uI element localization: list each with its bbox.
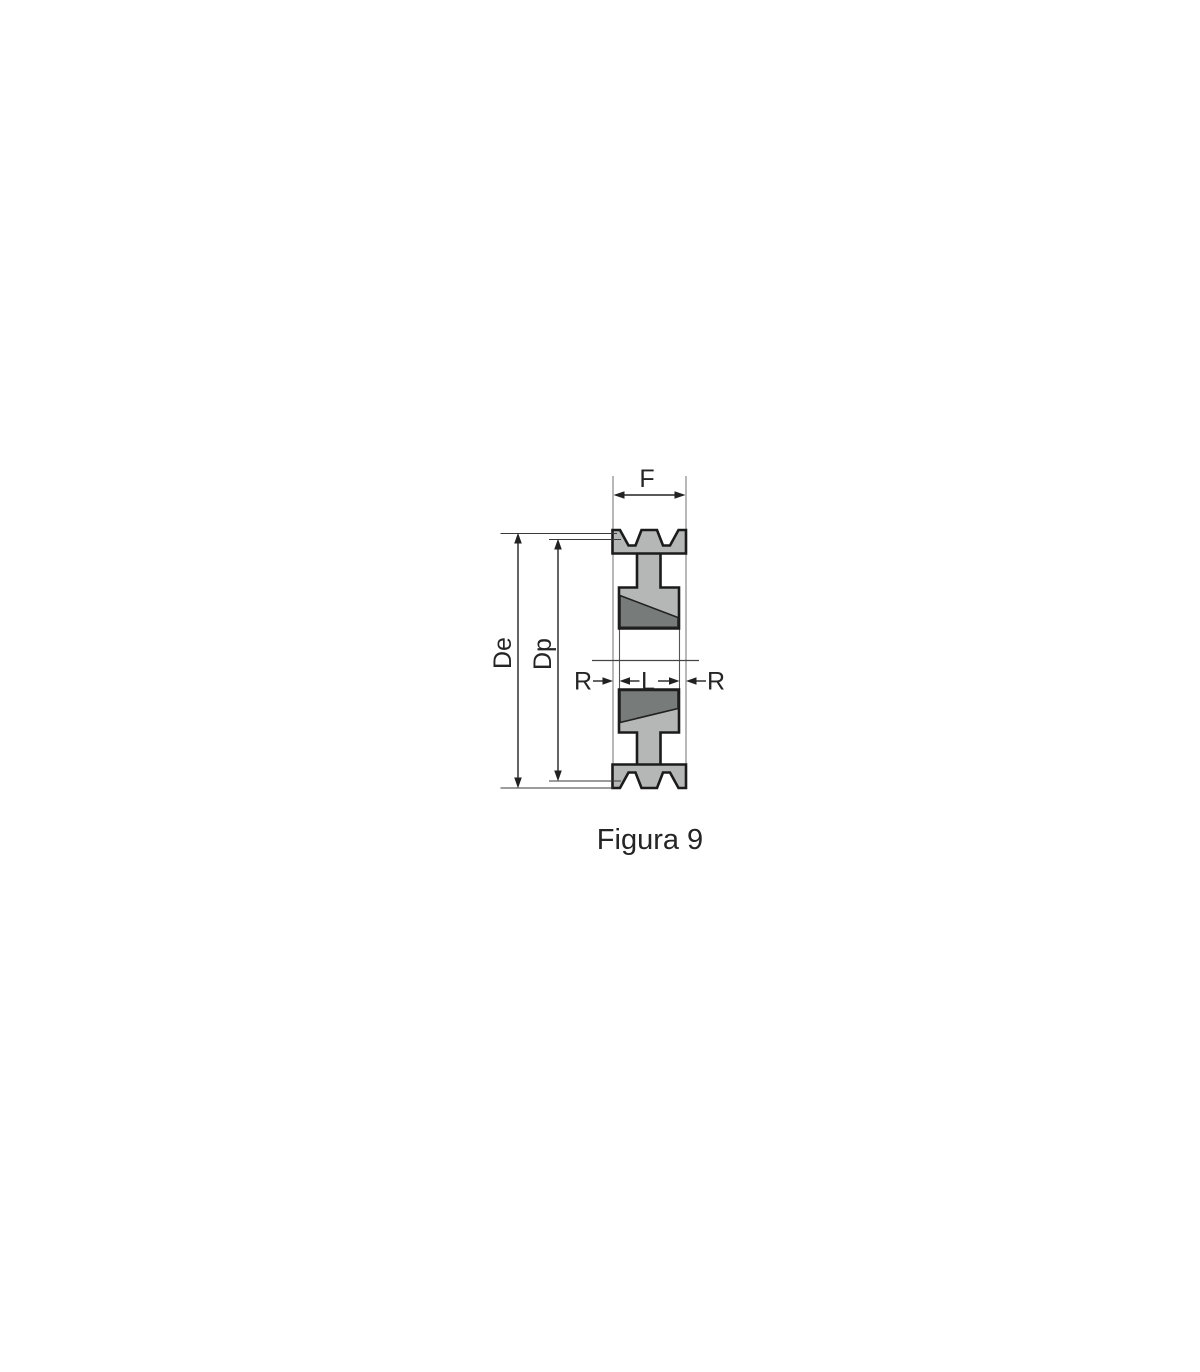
arrowhead-L-right <box>669 677 680 684</box>
arrowhead-Dp-down <box>554 771 562 782</box>
arrowhead-L-left <box>620 677 631 684</box>
label-face-width: F <box>639 465 654 493</box>
pulley-rim-bottom <box>613 765 687 789</box>
label-outer-diameter: De <box>489 637 517 669</box>
arrowhead-Dp-up <box>554 539 562 550</box>
pulley-rim-top <box>613 530 687 554</box>
figure-9-drawing: F De Dp R L R Figura 9 <box>0 0 1200 1372</box>
arrowhead-De-down <box>514 778 522 789</box>
page: F De Dp R L R Figura 9 <box>0 0 1200 1372</box>
figure-caption: Figura 9 <box>597 824 703 856</box>
arrowhead-F-left <box>614 491 625 499</box>
arrowhead-R-right <box>686 677 697 684</box>
label-bush-length: L <box>641 668 655 696</box>
label-recess-right: R <box>707 668 725 696</box>
arrowhead-F-right <box>675 491 686 499</box>
arrowhead-R-left <box>603 677 614 684</box>
label-pitch-diameter: Dp <box>529 638 557 670</box>
arrowhead-De-up <box>514 533 522 544</box>
label-recess-left: R <box>574 668 592 696</box>
